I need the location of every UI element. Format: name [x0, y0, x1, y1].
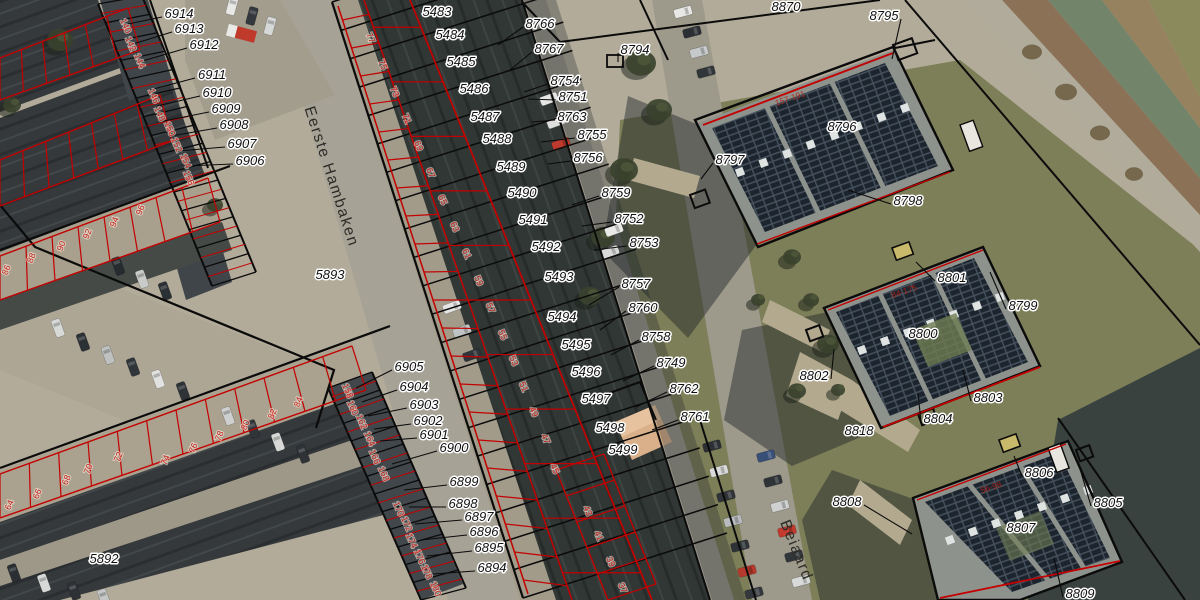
parcel-label-8799: 8799: [1009, 298, 1038, 313]
parcel-label-6914: 6914: [165, 6, 194, 21]
parcel-label-6895: 6895: [475, 540, 505, 555]
parcel-label-8870: 8870: [772, 0, 802, 14]
parcel-label-8797: 8797: [716, 152, 746, 167]
parcel-label-8756: 8756: [574, 150, 604, 165]
parcel-label-8806: 8806: [1025, 465, 1055, 480]
parcel-label-6912: 6912: [190, 37, 220, 52]
parcel-label-8759: 8759: [602, 185, 631, 200]
parcel-label-6905: 6905: [395, 359, 425, 374]
parcel-label-5490: 5490: [508, 185, 538, 200]
parcel-label-5496: 5496: [572, 364, 602, 379]
parcel-label-8760: 8760: [629, 300, 659, 315]
parcel-label-6904: 6904: [400, 379, 429, 394]
parcel-label-6900: 6900: [440, 440, 470, 455]
parcel-label-5892: 5892: [90, 551, 120, 566]
parcel-label-8757: 8757: [622, 276, 652, 291]
parcel-label-8804: 8804: [924, 411, 953, 426]
parcel-label-8766: 8766: [526, 16, 556, 31]
parcel-label-8763: 8763: [558, 109, 588, 124]
parcel-label-6907: 6907: [228, 136, 258, 151]
parcel-label-8803: 8803: [974, 390, 1004, 405]
parcel-label-6896: 6896: [470, 524, 500, 539]
parcel-label-6897: 6897: [465, 509, 495, 524]
parcel-label-6911: 6911: [198, 67, 226, 82]
parcel-label-5483: 5483: [423, 4, 453, 19]
parcel-label-8805: 8805: [1094, 495, 1124, 510]
parcel-label-6910: 6910: [203, 85, 233, 100]
parcel-label-8794: 8794: [621, 42, 650, 57]
aerial-cadastral-map[interactable]: 6914691369126911691069096908690769065893…: [0, 0, 1200, 600]
parcel-label-8754: 8754: [551, 73, 580, 88]
parcel-label-8800: 8800: [909, 326, 939, 341]
parcel-label-5499: 5499: [609, 442, 638, 457]
parcel-label-8758: 8758: [642, 329, 672, 344]
parcel-label-8753: 8753: [630, 235, 660, 250]
parcel-label-5489: 5489: [497, 159, 526, 174]
parcel-label-8807: 8807: [1007, 520, 1037, 535]
parcel-label-8802: 8802: [800, 368, 830, 383]
parcel-label-6906: 6906: [236, 153, 266, 168]
parcel-label-8752: 8752: [615, 211, 645, 226]
parcel-label-8818: 8818: [845, 423, 875, 438]
parcel-label-8767: 8767: [535, 41, 565, 56]
parcel-label-5493: 5493: [545, 269, 575, 284]
parcel-label-8795: 8795: [870, 8, 900, 23]
parcel-label-6894: 6894: [478, 560, 507, 575]
parcel-label-8798: 8798: [894, 193, 924, 208]
parcel-label-6913: 6913: [175, 21, 205, 36]
parcel-label-6903: 6903: [410, 397, 440, 412]
parcel-label-8796: 8796: [828, 119, 858, 134]
parcel-label-5498: 5498: [596, 420, 626, 435]
parcel-label-8749: 8749: [657, 355, 686, 370]
parcel-label-5487: 5487: [471, 109, 501, 124]
parcel-label-8762: 8762: [670, 381, 700, 396]
parcel-label-6909: 6909: [212, 101, 241, 116]
parcel-label-5492: 5492: [532, 239, 562, 254]
parcel-label-5485: 5485: [447, 54, 477, 69]
parcel-label-5484: 5484: [436, 27, 465, 42]
parcel-label-5893: 5893: [316, 267, 346, 282]
parcel-label-8808: 8808: [833, 494, 863, 509]
parcel-label-8751: 8751: [559, 89, 588, 104]
parcel-label-5486: 5486: [460, 81, 490, 96]
parcel-label-5495: 5495: [562, 337, 592, 352]
parcel-label-8801: 8801: [938, 270, 967, 285]
parcel-label-5497: 5497: [582, 391, 612, 406]
parcel-label-6902: 6902: [414, 413, 444, 428]
map-canvas: 6914691369126911691069096908690769065893…: [0, 0, 1200, 600]
parcel-label-8761: 8761: [681, 409, 710, 424]
parcel-label-8809: 8809: [1066, 586, 1095, 600]
parcel-label-6899: 6899: [450, 474, 479, 489]
parcel-label-5491: 5491: [519, 212, 548, 227]
parcel-label-5488: 5488: [483, 131, 513, 146]
parcel-label-8755: 8755: [578, 127, 608, 142]
parcel-label-5494: 5494: [548, 309, 577, 324]
parcel-label-6908: 6908: [220, 117, 250, 132]
